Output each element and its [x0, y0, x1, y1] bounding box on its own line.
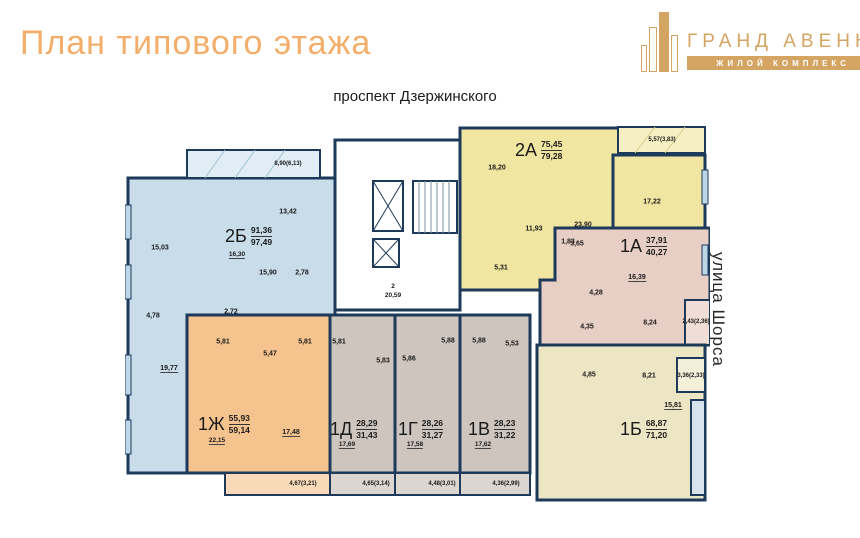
room-area-label: 2,78 [295, 270, 309, 277]
window-icon [125, 205, 131, 239]
room-area-label: 17,58 [407, 441, 423, 449]
room-area-label: 5,83 [376, 358, 390, 365]
balcony-area-label: 8,90(6,13) [274, 161, 301, 167]
room-area-label: 4,78 [146, 313, 160, 320]
page-title: План типового этажа [20, 24, 371, 63]
balcony-area-label: 4,36(2,99) [492, 481, 519, 487]
window-icon [702, 245, 708, 275]
balcony-area-label: 4,67(3,21) [289, 481, 316, 487]
corridor-number-label: 2 [391, 283, 395, 291]
balcony-area-label: 3,36(2,33) [677, 373, 704, 379]
zone-apartments-mid [330, 315, 530, 473]
room-area-label: 5,53 [505, 341, 519, 348]
room-area-label: 5,31 [494, 265, 508, 272]
room-area-label: 5,86 [402, 356, 416, 363]
apartment-label-2a: 2А 75,4579,28 [515, 139, 562, 161]
balcony-area-label: 2,43(2,36) [682, 319, 709, 325]
room-area-label: 17,62 [475, 441, 491, 449]
room-area-label: 16,30 [229, 251, 245, 259]
apartment-label-1zh: 1Ж 55,9359,14 [198, 413, 250, 435]
window-icon [125, 420, 131, 454]
logo-name: ГРАНД АВЕНЮ [687, 31, 860, 53]
apartment-label-1g: 1Г 28,2631,27 [398, 418, 443, 440]
window-icon [702, 170, 708, 204]
room-area-label: 23,90 [574, 222, 592, 229]
logo: ГРАНД АВЕНЮ ЖИЛОЙ КОМПЛЕКС [641, 8, 860, 72]
room-area-label: 19,77 [160, 365, 178, 373]
page: План типового этажа ГРАНД АВЕНЮ ЖИЛОЙ КО… [0, 0, 860, 538]
room-area-label: 5,88 [472, 338, 486, 345]
street-label-top: проспект Дзержинского [300, 88, 530, 105]
room-area-label: 5,81 [216, 339, 230, 346]
room-area-label: 15,90 [259, 270, 277, 277]
corridor-area-label: 20,59 [385, 292, 401, 300]
zone-edge-strip [691, 400, 705, 495]
apartment-label-1d: 1Д 28,2931,43 [330, 418, 377, 440]
balcony-area-label: 4,48(3,01) [428, 481, 455, 487]
window-icon [125, 265, 131, 299]
room-area-label: 11,93 [525, 226, 542, 233]
apartment-label-2b: 2Б 91,3697,49 [225, 225, 272, 247]
balcony-area-label: 5,57(3,83) [648, 137, 675, 143]
room-area-label: 8,24 [643, 320, 657, 327]
room-area-label: 16,39 [628, 274, 646, 282]
room-area-label: 17,48 [282, 429, 300, 437]
apartment-label-1v: 1В 28,2331,22 [468, 418, 515, 440]
room-area-label: 5,47 [263, 351, 277, 358]
room-area-label: 5,88 [441, 338, 455, 345]
zone-room-2a-bedroom [613, 155, 705, 228]
building-icon [641, 8, 678, 72]
room-area-label: 4,35 [580, 324, 594, 331]
room-area-label: 18,20 [488, 165, 506, 172]
staircase-icon [413, 181, 457, 233]
street-label-right: улица Шорса [708, 252, 728, 412]
room-area-label: 22,15 [209, 437, 225, 445]
apartment-label-1a: 1А 37,9140,27 [620, 235, 667, 257]
room-area-label: 17,22 [643, 199, 661, 206]
balcony-area-label: 4,65(3,14) [362, 481, 389, 487]
window-icon [125, 355, 131, 395]
room-area-label: 4,85 [582, 372, 596, 379]
room-area-label: 15,03 [151, 245, 169, 252]
room-area-label: 3,65 [570, 241, 584, 248]
apartment-label-1b: 1Б 68,8771,20 [620, 418, 667, 440]
room-area-label: 5,81 [332, 339, 346, 346]
room-area-label: 5,81 [298, 339, 312, 346]
room-area-label: 13,42 [279, 209, 297, 216]
room-area-label: 8,21 [642, 373, 656, 380]
logo-subtitle: ЖИЛОЙ КОМПЛЕКС [687, 56, 860, 70]
room-area-label: 4,28 [589, 290, 603, 297]
floor-plan: 2Б 91,3697,49 16,30 2А 75,4579,28 1А 37,… [125, 115, 710, 510]
room-area-label: 15,81 [664, 402, 682, 410]
room-area-label: 2,72 [224, 309, 238, 316]
room-area-label: 17,69 [339, 441, 355, 449]
floor-plan-drawing [125, 115, 710, 510]
